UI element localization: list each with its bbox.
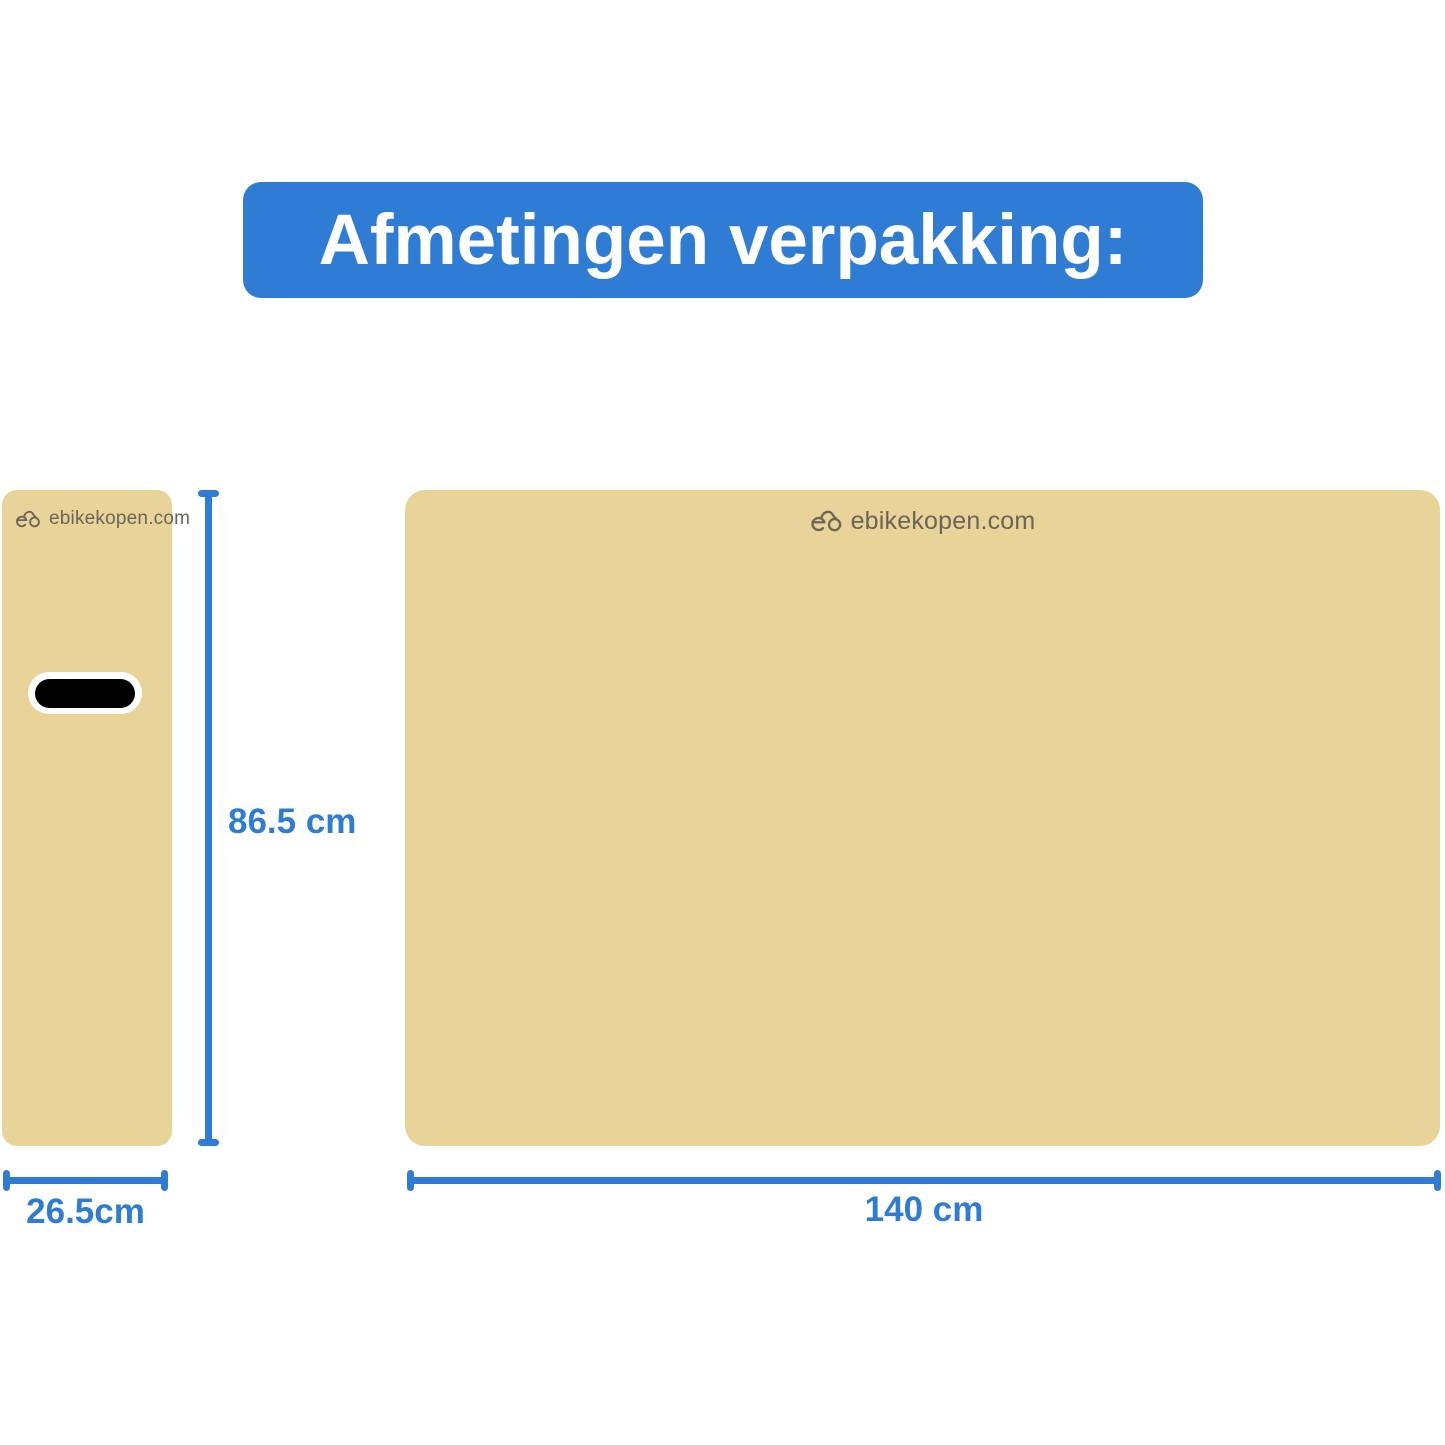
side-width-dimension-label: 26.5cm [3, 1192, 168, 1232]
side-width-dimension-line [3, 1170, 168, 1191]
package-side-view-box [2, 490, 172, 1146]
front-width-dimension-line [407, 1170, 1441, 1191]
ebike-logo-icon [810, 508, 844, 535]
page-title: Afmetingen verpakking: [319, 200, 1128, 281]
dimension-line [407, 1177, 1441, 1184]
height-dimension-line [198, 490, 219, 1146]
front-box-brand-logo: ebikekopen.com [405, 507, 1440, 536]
handle-cutout [28, 672, 142, 714]
dimension-cap [161, 1170, 168, 1191]
dimension-line [205, 490, 212, 1146]
side-box-brand-logo: ebikekopen.com [15, 508, 190, 530]
package-front-view-box [405, 490, 1440, 1146]
packaging-dimensions-infographic: Afmetingen verpakking: ebikekopen.com eb… [0, 0, 1445, 1445]
front-width-dimension-label: 140 cm [407, 1190, 1441, 1230]
brand-text: ebikekopen.com [49, 508, 190, 530]
title-banner: Afmetingen verpakking: [243, 182, 1203, 298]
dimension-cap [1434, 1170, 1441, 1191]
dimension-cap [198, 1139, 219, 1146]
height-dimension-label: 86.5 cm [228, 802, 356, 842]
brand-text: ebikekopen.com [851, 507, 1036, 536]
dimension-line [3, 1177, 168, 1184]
ebike-logo-icon [15, 509, 42, 530]
handle-hole [35, 679, 135, 708]
